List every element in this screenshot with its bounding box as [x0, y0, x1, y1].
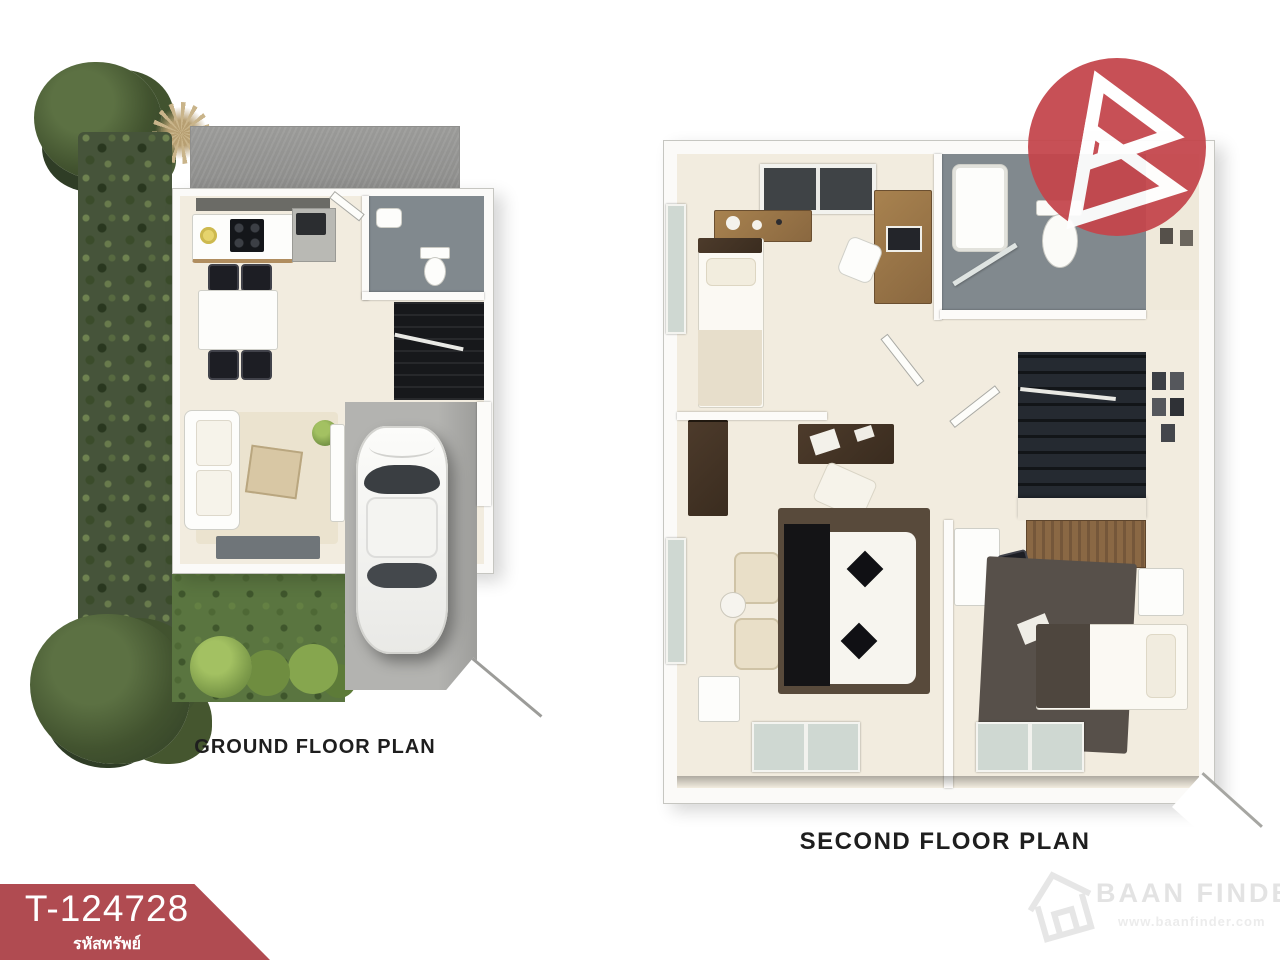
bed-pillow: [1146, 634, 1176, 698]
bathroom-wall: [362, 196, 369, 300]
watermark-url: www.baanfinder.com: [1118, 914, 1266, 929]
computer-monitor-icon: [886, 226, 922, 252]
property-code-caption: รหัสทรัพย์: [73, 932, 141, 957]
kitchen-appliance: [296, 213, 326, 235]
sink-icon: [376, 208, 402, 228]
roof-slab: [190, 126, 460, 194]
property-code-banner: T-124728 รหัสทรัพย์: [0, 884, 270, 960]
garage-side-wall: [477, 402, 491, 506]
stairwell: [1018, 352, 1146, 502]
bathroom2-wall: [940, 310, 1146, 319]
bed-blanket: [698, 330, 762, 406]
vanity-items: [726, 216, 740, 230]
nightstand: [1138, 568, 1184, 616]
tv-console: [330, 424, 345, 522]
dining-table: [198, 290, 278, 350]
partition-wall: [944, 520, 953, 788]
bed-headboard: [698, 238, 762, 253]
wall-art-icon: [1152, 372, 1166, 390]
property-code: T-124728: [25, 888, 189, 930]
partition-wall: [677, 412, 827, 420]
car-top-view: [356, 426, 448, 654]
bathroom2-wall: [934, 154, 942, 320]
window-bottom: [976, 722, 1084, 772]
second-floor-label: SECOND FLOOR PLAN: [795, 828, 1095, 856]
window-left: [666, 204, 686, 334]
floor-shadow: [677, 776, 1199, 788]
window-left: [666, 538, 686, 664]
baanfinder-logo: [1028, 58, 1206, 236]
stove-icon: [230, 219, 264, 252]
ground-floor-plan: GROUND FLOOR PLAN: [0, 0, 560, 800]
dining-chair: [208, 350, 239, 380]
watermark: BAAN FINDER www.baanfinder.com: [1022, 856, 1280, 956]
bush-row: [190, 636, 252, 698]
double-bed-duvet: [830, 532, 916, 684]
sofa-cushion: [196, 470, 232, 516]
watermark-brand: BAAN FINDER: [1096, 878, 1280, 909]
skylight-window: [760, 164, 876, 214]
side-table-round: [720, 592, 746, 618]
sofa-cushion: [196, 420, 232, 466]
staircase: [394, 302, 484, 400]
floorplan-listing-image: GROUND FLOOR PLAN: [0, 0, 1280, 960]
coffee-table: [245, 445, 303, 500]
kitchen-sink-icon: [200, 227, 217, 244]
toilet-icon: [424, 257, 446, 286]
window-bottom: [752, 722, 860, 772]
nightstand: [698, 676, 740, 722]
dining-chair: [241, 264, 272, 292]
ground-floor-label: GROUND FLOOR PLAN: [160, 736, 470, 759]
bathroom-wall: [362, 292, 484, 300]
wardrobe: [688, 420, 728, 516]
dining-chair: [208, 264, 239, 292]
bed-blanket: [1036, 624, 1090, 708]
door-mat: [216, 536, 320, 559]
logo-b-icon: [1028, 58, 1206, 236]
stair-landing: [1018, 498, 1146, 520]
dining-chair: [241, 350, 272, 380]
bed-pillow: [706, 258, 756, 286]
armchair: [734, 618, 780, 670]
bathroom-sink: [952, 164, 1008, 252]
bed-headboard: [784, 524, 830, 686]
